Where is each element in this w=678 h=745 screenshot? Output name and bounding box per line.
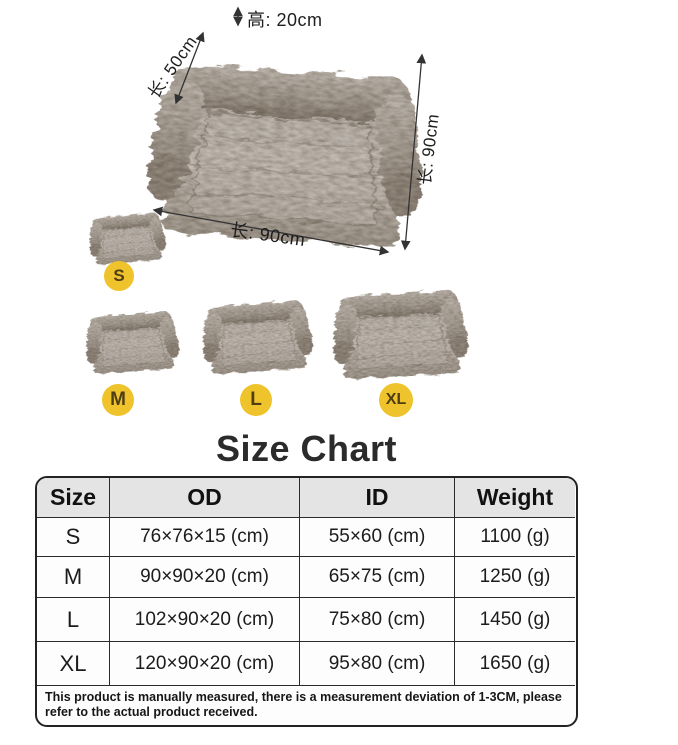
cell-size-s: S bbox=[37, 518, 110, 557]
cell-weight-xl: 1650 (g) bbox=[455, 642, 575, 686]
cell-weight-l: 1450 (g) bbox=[455, 598, 575, 642]
cell-size-l: L bbox=[37, 598, 110, 642]
cell-weight-s: 1100 (g) bbox=[455, 518, 575, 557]
column-header-weight: Weight bbox=[455, 478, 575, 518]
pet-bed-photo-size-s bbox=[83, 199, 170, 272]
cell-id-xl: 95×80 (cm) bbox=[300, 642, 455, 686]
product-size-chart-image: 高: 20cm 长: 50cm 长: 90cm 长: 90cm S M L XL… bbox=[0, 0, 678, 745]
cell-od-l: 102×90×20 (cm) bbox=[110, 598, 300, 642]
size-chart-title: Size Chart bbox=[35, 428, 578, 470]
size-badge-m: M bbox=[102, 384, 134, 416]
pet-bed-photo-size-xl bbox=[323, 268, 477, 388]
size-badge-xl: XL bbox=[379, 383, 413, 417]
cell-size-xl: XL bbox=[37, 642, 110, 686]
size-chart-table: Size OD ID Weight S 76×76×15 (cm) 55×60 … bbox=[35, 476, 578, 727]
pet-bed-photo-size-l bbox=[195, 282, 319, 382]
column-header-size: Size bbox=[37, 478, 110, 518]
measurement-note: This product is manually measured, there… bbox=[37, 686, 576, 725]
column-header-id: ID bbox=[300, 478, 455, 518]
cell-od-xl: 120×90×20 (cm) bbox=[110, 642, 300, 686]
size-badge-l: L bbox=[240, 384, 272, 416]
dimension-label-height: 高: 20cm bbox=[247, 6, 323, 32]
cell-size-m: M bbox=[37, 557, 110, 598]
cell-id-s: 55×60 (cm) bbox=[300, 518, 455, 557]
cell-od-m: 90×90×20 (cm) bbox=[110, 557, 300, 598]
product-photo-area: 高: 20cm 长: 50cm 长: 90cm 长: 90cm S M L XL bbox=[0, 0, 678, 430]
cell-id-l: 75×80 (cm) bbox=[300, 598, 455, 642]
cell-id-m: 65×75 (cm) bbox=[300, 557, 455, 598]
cell-od-s: 76×76×15 (cm) bbox=[110, 518, 300, 557]
size-badge-s: S bbox=[104, 261, 134, 291]
pet-bed-photo-size-m bbox=[79, 295, 184, 382]
cell-weight-m: 1250 (g) bbox=[455, 557, 575, 598]
column-header-od: OD bbox=[110, 478, 300, 518]
